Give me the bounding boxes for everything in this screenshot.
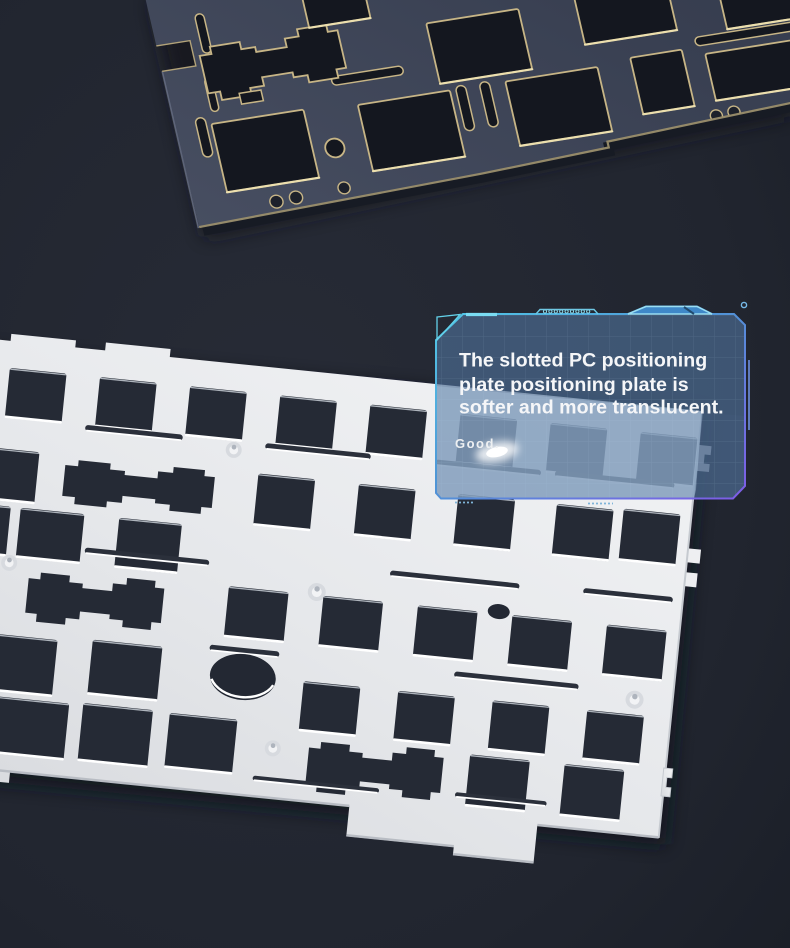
svg-text:Good.: Good. <box>455 436 500 451</box>
svg-text:plate positioning plate is: plate positioning plate is <box>459 374 689 396</box>
svg-text:The slotted PC positioning: The slotted PC positioning <box>459 350 707 372</box>
svg-text:softer and more translucent.: softer and more translucent. <box>459 397 724 419</box>
